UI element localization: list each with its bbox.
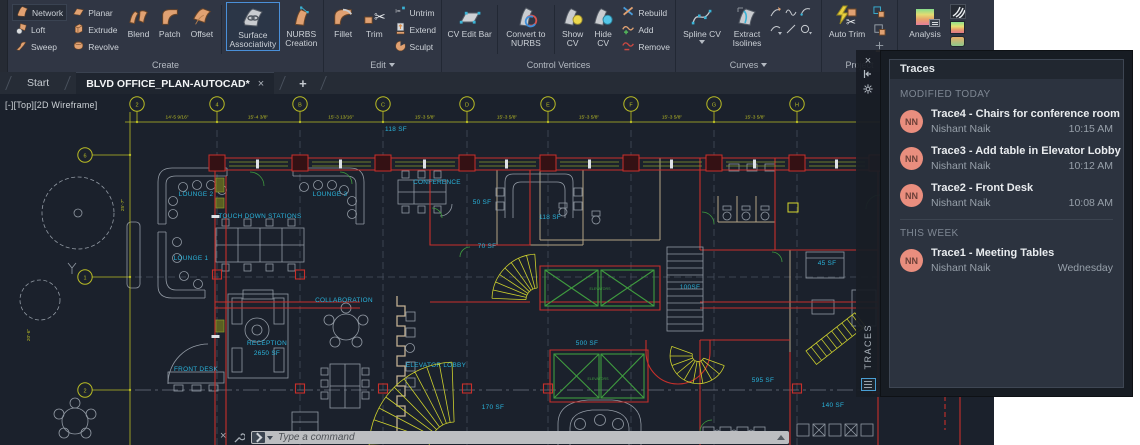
nurbs-creation-icon (290, 4, 312, 30)
planar-button[interactable]: Planar (69, 4, 122, 21)
remove-icon (622, 39, 635, 54)
trace-time: 10:12 AM (1069, 160, 1113, 172)
sweep-label: Sweep (31, 42, 57, 52)
curvature-analysis-icon[interactable] (950, 36, 965, 47)
planar-label: Planar (88, 8, 113, 18)
extend-button[interactable]: Extend (391, 21, 439, 38)
svg-text:✂: ✂ (846, 15, 856, 29)
network-button[interactable]: Network (12, 4, 67, 21)
svg-text:2: 2 (135, 103, 138, 109)
svg-text:E: E (546, 103, 550, 109)
fillet-label: Fillet (334, 30, 352, 39)
svg-text:15'-3 5/8": 15'-3 5/8" (579, 115, 600, 121)
svg-text:G: G (712, 103, 716, 109)
spline-cv-label: Spline CV (683, 30, 721, 39)
network-icon (16, 5, 29, 20)
sculpt-label: Sculpt (410, 42, 434, 52)
fillet-button[interactable]: Fillet (328, 2, 358, 39)
command-icon (252, 432, 265, 443)
curve-blend-icon[interactable] (770, 5, 785, 22)
edit-dropdown-caret-icon (389, 63, 395, 67)
curve-line-icon[interactable] (785, 22, 800, 39)
remove-cv-label: Remove (638, 42, 670, 52)
untrim-label: Untrim (410, 8, 435, 18)
tab-separator (279, 76, 286, 90)
svg-text:FRONT DESK: FRONT DESK (174, 366, 219, 373)
svg-text:TOUCH DOWN STATIONS: TOUCH DOWN STATIONS (218, 213, 301, 220)
curves-dropdown-caret-icon (761, 63, 767, 67)
floor-plan: 24BCDEFGH61214'-5 9/16"15'-4 3/8"15'-3 1… (0, 94, 994, 445)
trim-button[interactable]: ✂ Trim (360, 2, 388, 39)
ribbon-panel-curves: Spline CV Extract Isolines Curves (676, 0, 822, 72)
curve-spline-icon[interactable] (785, 5, 800, 22)
avatar: NN (900, 249, 923, 272)
surface-associativity-icon (241, 5, 265, 31)
svg-text:D: D (465, 103, 469, 109)
svg-text:1: 1 (83, 275, 86, 281)
untrim-icon: ✂ (394, 5, 407, 20)
plan-annotations: 24BCDEFGH61214'-5 9/16"15'-4 3/8"15'-3 1… (26, 97, 945, 445)
svg-text:140 SF: 140 SF (822, 402, 844, 409)
curve-arc-icon[interactable] (770, 22, 785, 39)
trace-item[interactable]: NN Trace2 - Front Desk Nishant Naik 10:0… (900, 182, 1113, 209)
avatar: NN (900, 110, 923, 133)
avatar: NN (900, 147, 923, 170)
command-expand-icon[interactable] (777, 435, 785, 440)
trace-toolbar-icon[interactable] (861, 378, 876, 391)
tab-separator (64, 76, 71, 90)
svg-text:25'-7": 25'-7" (120, 199, 126, 212)
hide-cv-icon (592, 4, 614, 30)
trace-item[interactable]: NN Trace1 - Meeting Tables Nishant Naik … (900, 247, 1113, 274)
svg-text:500 SF: 500 SF (576, 340, 598, 347)
svg-text:2650 SF: 2650 SF (254, 350, 280, 357)
trace-title: Trace2 - Front Desk (931, 182, 1113, 194)
section-header-modified-today: MODIFIED TODAY (900, 89, 1113, 100)
palette-properties-icon[interactable] (863, 84, 873, 99)
revolve-icon (72, 39, 85, 54)
tab-separator (320, 76, 327, 90)
patch-label: Patch (159, 30, 181, 39)
sweep-button[interactable]: Sweep (12, 38, 67, 55)
svg-text:100SF: 100SF (680, 284, 700, 291)
offset-button[interactable]: Offset (186, 2, 217, 39)
command-line[interactable]: Type a command (251, 431, 789, 444)
rebuild-label: Rebuild (638, 8, 667, 18)
network-label: Network (32, 8, 63, 18)
svg-text:LOUNGE 3: LOUNGE 3 (313, 191, 348, 198)
hide-cv-button[interactable]: Hide CV (589, 2, 617, 49)
tab-close-icon[interactable]: × (258, 78, 264, 90)
svg-text:ELEVATORS: ELEVATORS (590, 287, 612, 291)
wall-columns (209, 155, 885, 171)
trace-title: Trace4 - Chairs for conference room (931, 108, 1113, 120)
trace-item[interactable]: NN Trace4 - Chairs for conference room N… (900, 108, 1113, 135)
revolve-button[interactable]: Revolve (69, 38, 122, 55)
section-header-this-week: THIS WEEK (900, 228, 1113, 239)
offset-label: Offset (191, 30, 214, 39)
rebuild-button[interactable]: Rebuild (619, 4, 673, 21)
project-view-icon[interactable] (870, 21, 889, 38)
commandline-close-icon[interactable]: × (220, 430, 226, 442)
svg-text:2: 2 (83, 388, 86, 394)
patch-button[interactable]: Patch (155, 2, 184, 39)
sculpt-button[interactable]: Sculpt (391, 38, 439, 55)
furniture (20, 164, 876, 445)
convert-to-nurbs-icon (514, 4, 538, 30)
extrude-label: Extrude (88, 25, 117, 35)
trim-icon: ✂ (363, 4, 385, 30)
fillet-icon (332, 4, 354, 30)
tab-start[interactable]: Start (17, 72, 59, 94)
svg-text:70 SF: 70 SF (478, 243, 497, 250)
svg-text:6: 6 (83, 153, 86, 159)
tab-drawing-label: BLVD OFFICE_PLAN-AUTOCAD* (86, 78, 250, 90)
extract-isolines-button[interactable]: Extract Isolines (726, 2, 768, 49)
svg-text:15'-3 5/8": 15'-3 5/8" (497, 115, 518, 121)
analysis-gradient-icon[interactable] (950, 21, 965, 34)
trace-time: 10:08 AM (1069, 197, 1113, 209)
auto-trim-icon: ✂ (834, 4, 860, 30)
curve-circle-icon[interactable] (800, 22, 815, 39)
sculpt-icon (394, 39, 407, 54)
spline-cv-button[interactable]: Spline CV (680, 2, 724, 44)
palette-vertical-label[interactable]: TRACES (863, 324, 873, 370)
section-divider (900, 219, 1113, 220)
rebuild-icon (622, 5, 635, 20)
cv-edit-bar-label: CV Edit Bar (447, 30, 491, 39)
panel-label-edit[interactable]: Edit (324, 57, 441, 72)
blend-label: Blend (128, 30, 150, 39)
svg-text:CONFERENCE: CONFERENCE (413, 179, 461, 186)
avatar: NN (900, 184, 923, 207)
ribbon-edge (0, 0, 8, 72)
extend-label: Extend (410, 25, 436, 35)
extrude-button[interactable]: Extrude (69, 21, 122, 38)
svg-text:C: C (381, 103, 385, 109)
hide-cv-label: Hide CV (590, 30, 616, 49)
trace-time: 10:15 AM (1069, 123, 1113, 135)
svg-text:LOUNGE 1: LOUNGE 1 (174, 255, 209, 262)
trace-author: Nishant Naik (931, 197, 991, 209)
extrude-icon (72, 22, 85, 37)
extend-icon (394, 22, 407, 37)
add-cv-label: Add (638, 25, 653, 35)
cv-edit-bar-icon (458, 4, 482, 30)
file-tab-bar: Start BLVD OFFICE_PLAN-AUTOCAD* × + (0, 72, 994, 94)
panel-label-curves[interactable]: Curves (676, 57, 821, 72)
commandline-customize-icon[interactable] (234, 430, 245, 445)
loft-icon (15, 22, 28, 37)
svg-text:RECEPTION: RECEPTION (247, 340, 287, 347)
tab-separator (5, 76, 12, 90)
offset-icon (191, 4, 213, 30)
ribbon: Network Loft Sweep Planar Extrude (0, 0, 994, 72)
viewport-controls[interactable]: [-][Top][2D Wireframe] (5, 100, 97, 110)
sweep-icon (15, 39, 28, 54)
svg-text:✂: ✂ (395, 9, 401, 16)
svg-text:118 SF: 118 SF (385, 126, 407, 133)
new-tab-button[interactable]: + (291, 72, 315, 94)
traces-palette: Traces MODIFIED TODAY NN Trace4 - Chairs… (880, 50, 1133, 397)
svg-text:15'-3 5/8": 15'-3 5/8" (745, 115, 766, 121)
zebra-analysis-icon[interactable] (950, 4, 966, 19)
panel-label-control-vertices[interactable]: Control Vertices (442, 57, 675, 72)
loft-button[interactable]: Loft (12, 21, 67, 38)
trace-time: Wednesday (1058, 262, 1113, 274)
svg-text:LOUNGE 2: LOUNGE 2 (179, 191, 214, 198)
surface-associativity-button[interactable]: Surface Associativity (226, 2, 279, 51)
analysis-button[interactable]: Analysis (902, 2, 948, 39)
svg-text:4: 4 (215, 103, 218, 109)
svg-text:COLLABORATION: COLLABORATION (315, 297, 373, 304)
trace-title: Trace1 - Meeting Tables (931, 247, 1113, 259)
svg-text:45 SF: 45 SF (818, 260, 837, 267)
autocad-window: Network Loft Sweep Planar Extrude (0, 0, 994, 445)
panel-label-create[interactable]: Create (8, 57, 323, 72)
auto-trim-label: Auto Trim (829, 30, 865, 39)
planar-icon (72, 5, 85, 20)
analysis-icon (916, 4, 934, 30)
trim-label: Trim (366, 30, 383, 39)
trace-title: Trace3 - Add table in Elevator Lobby (931, 145, 1113, 157)
blend-button[interactable]: Blend (124, 2, 153, 39)
spline-cv-caret-icon (699, 40, 705, 44)
svg-text:15'-3 13/16": 15'-3 13/16" (328, 115, 354, 121)
cv-edit-bar-button[interactable]: CV Edit Bar (446, 2, 493, 39)
svg-text:B: B (298, 103, 302, 109)
palette-title: Traces (890, 60, 1123, 79)
untrim-button[interactable]: ✂ Untrim (391, 4, 439, 21)
svg-text:118 SF: 118 SF (539, 214, 561, 221)
svg-text:14'-5 9/16": 14'-5 9/16" (166, 115, 189, 121)
drawing-canvas[interactable]: [-][Top][2D Wireframe] (0, 94, 994, 445)
analysis-label: Analysis (909, 30, 941, 39)
surface-associativity-label: Surface Associativity (228, 31, 277, 50)
extract-isolines-label: Extract Isolines (727, 30, 767, 49)
svg-text:ELEVATORS: ELEVATORS (588, 377, 610, 381)
nurbs-creation-label: NURBS Creation (283, 30, 320, 49)
svg-text:F: F (629, 103, 633, 109)
revolve-label: Revolve (88, 42, 119, 52)
patch-icon (159, 4, 181, 30)
palette-title-strip: × TRACES (856, 50, 880, 397)
extract-isolines-icon (735, 4, 759, 30)
highlight-box (788, 203, 798, 212)
command-recent-caret-icon[interactable] (267, 436, 273, 440)
svg-text:✂: ✂ (374, 10, 385, 25)
svg-text:ELEVATOR LOBBY: ELEVATOR LOBBY (406, 362, 467, 369)
trace-author: Nishant Naik (931, 262, 991, 274)
trace-author: Nishant Naik (931, 123, 991, 135)
remove-cv-button[interactable]: Remove (619, 38, 673, 55)
svg-text:15'-3 5/8": 15'-3 5/8" (662, 115, 683, 121)
ribbon-panel-control-vertices: CV Edit Bar Convert to NURBS Show CV Hid… (442, 0, 676, 72)
svg-text:50 SF: 50 SF (473, 199, 492, 206)
show-cv-button[interactable]: Show CV (558, 2, 586, 49)
auto-trim-button[interactable]: ✂ Auto Trim (826, 2, 868, 39)
svg-text:15'-4 3/8": 15'-4 3/8" (248, 115, 269, 121)
project-geometry-icon[interactable] (870, 4, 889, 21)
ribbon-panel-edit: Fillet ✂ Trim ✂ Untrim Extend Sculpt (324, 0, 442, 72)
add-icon (622, 22, 635, 37)
spline-cv-icon (690, 4, 714, 30)
svg-text:H: H (795, 103, 799, 109)
wall-ticks (212, 160, 839, 339)
ribbon-panel-create: Network Loft Sweep Planar Extrude (8, 0, 324, 72)
svg-text:170 SF: 170 SF (482, 404, 504, 411)
tab-drawing[interactable]: BLVD OFFICE_PLAN-AUTOCAD* × (76, 72, 274, 94)
svg-text:20'-6": 20'-6" (26, 329, 32, 342)
convert-to-nurbs-label: Convert to NURBS (503, 30, 548, 49)
convert-to-nurbs-button[interactable]: Convert to NURBS (502, 2, 549, 49)
show-cv-icon (562, 4, 584, 30)
add-cv-button[interactable]: Add (619, 21, 673, 38)
palette-autohide-icon[interactable] (863, 69, 873, 84)
trace-author: Nishant Naik (931, 160, 991, 172)
curve-offset-icon[interactable] (800, 5, 815, 22)
nurbs-creation-button[interactable]: NURBS Creation (282, 2, 321, 49)
loft-label: Loft (31, 25, 45, 35)
trace-item[interactable]: NN Trace3 - Add table in Elevator Lobby … (900, 145, 1113, 172)
svg-text:15'-3 5/8": 15'-3 5/8" (415, 115, 436, 121)
show-cv-label: Show CV (559, 30, 585, 49)
svg-text:595 SF: 595 SF (752, 377, 774, 384)
command-input[interactable]: Type a command (278, 432, 355, 443)
blend-icon (128, 4, 150, 30)
palette-close-icon[interactable]: × (865, 54, 871, 69)
